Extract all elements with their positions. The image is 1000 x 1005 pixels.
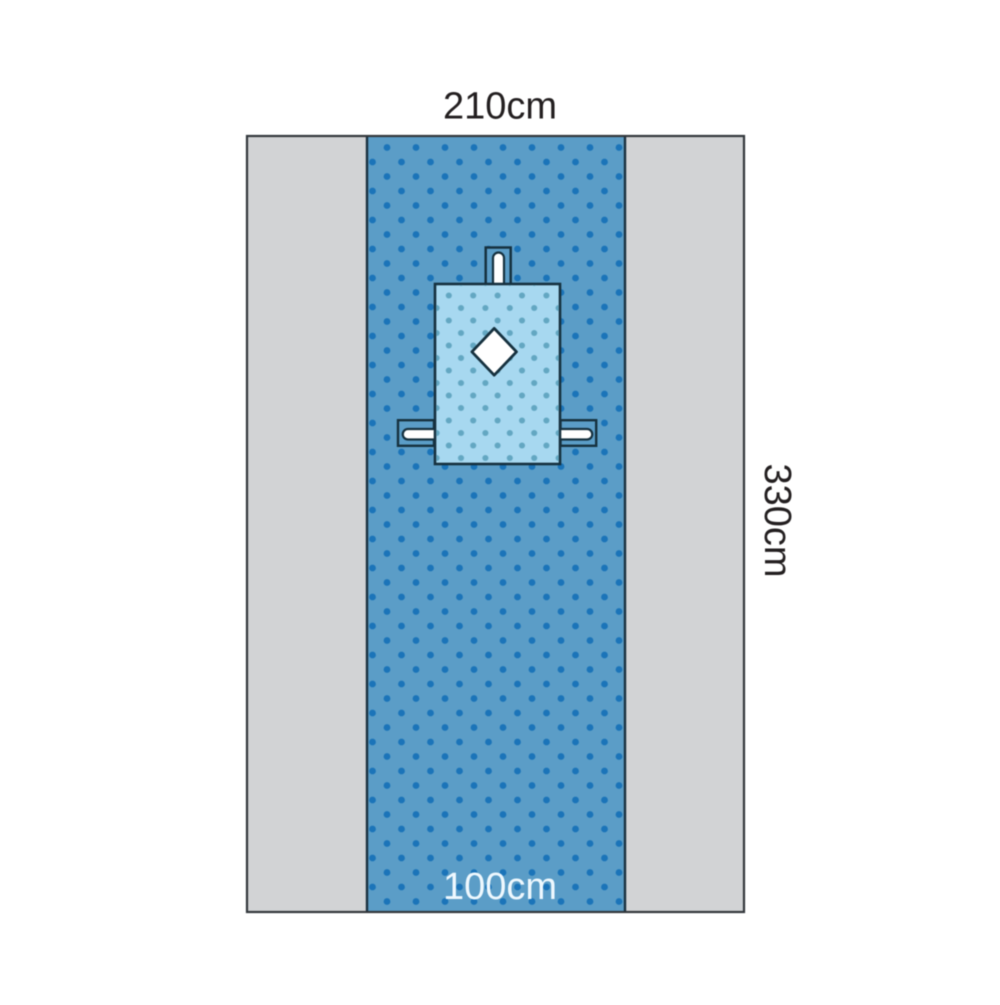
svg-text:210cm: 210cm [443, 86, 557, 128]
svg-text:330cm: 330cm [756, 463, 798, 577]
svg-text:100cm: 100cm [443, 866, 557, 908]
